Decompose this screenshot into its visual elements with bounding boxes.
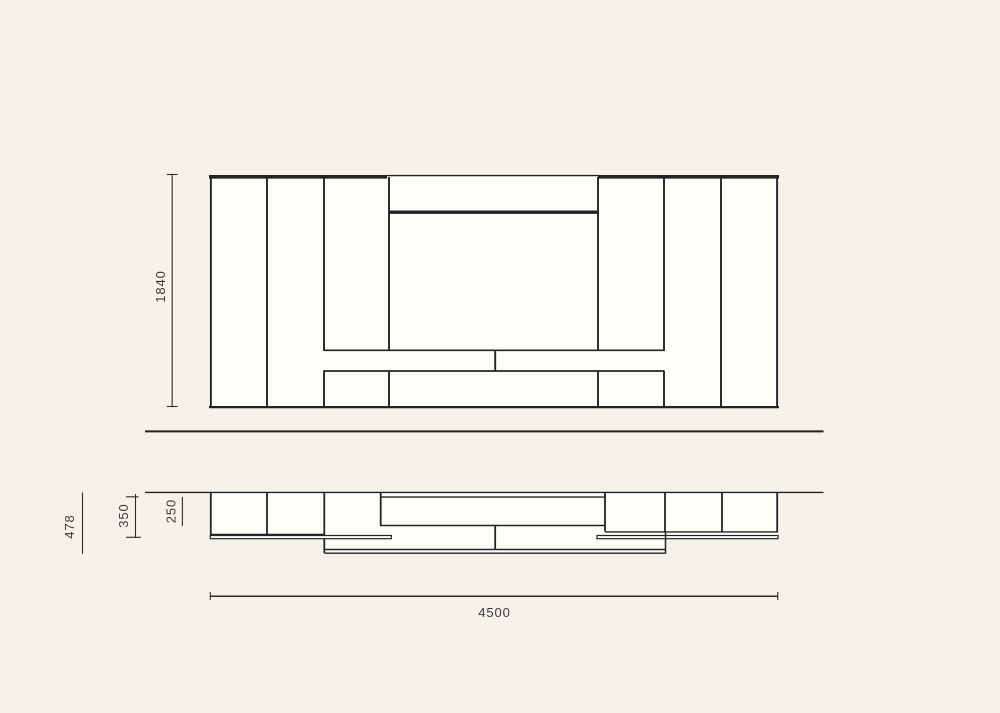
front-elevation-view [209,175,779,408]
depth-dimensions: 478 350 250 [62,493,182,554]
height-dimension: 1840 [153,174,178,407]
depth-250-label: 250 [163,499,178,523]
depth-350-label: 350 [116,503,131,527]
top-plan-view [145,492,824,554]
drawing-canvas: 1840 478 [0,0,1000,713]
plan-left-block-body [210,492,391,539]
plan-left-front-panel [210,536,391,539]
plan-right-front-panel [597,536,778,539]
depth-478-label: 478 [62,514,77,538]
elevation-body [210,175,778,408]
width-dimension: 4500 [210,592,778,620]
height-dim-label: 1840 [153,270,168,303]
width-dim-label: 4500 [478,605,511,620]
